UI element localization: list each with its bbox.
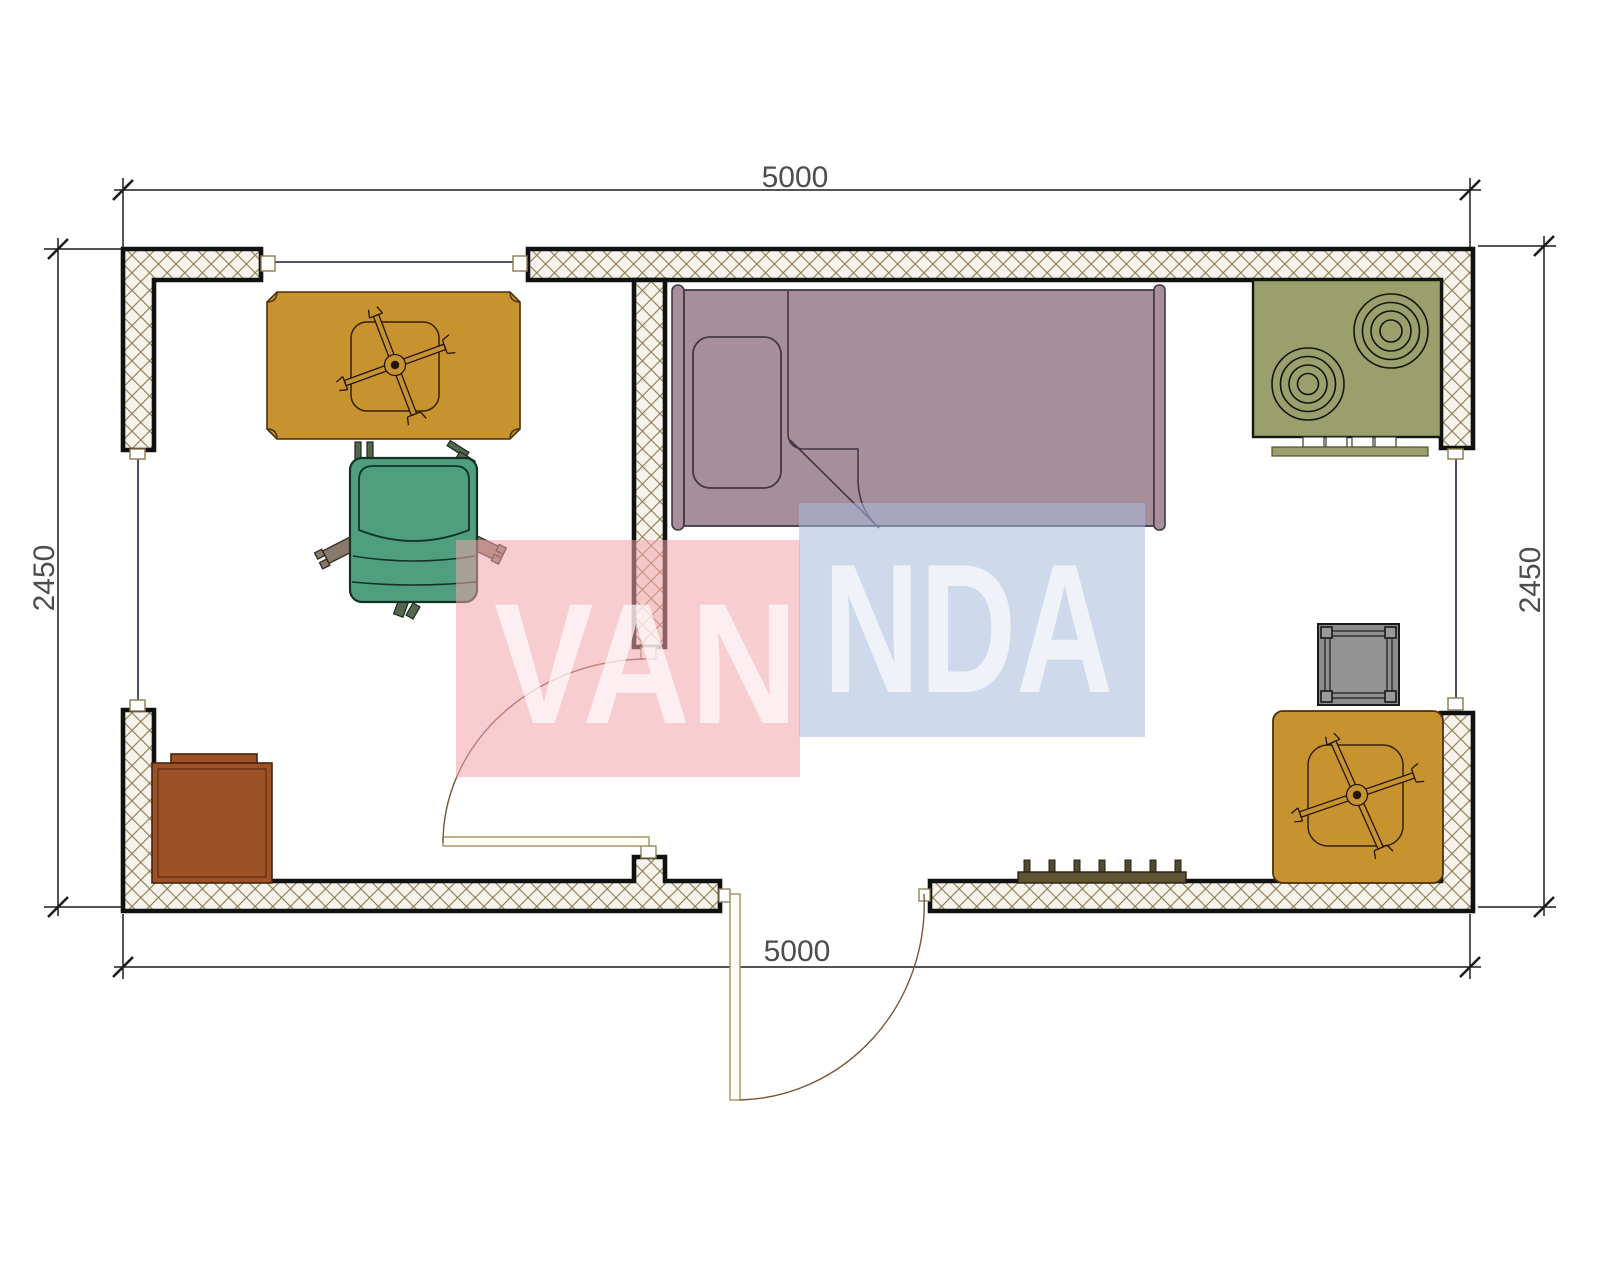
svg-text:2450: 2450 xyxy=(28,545,61,612)
svg-text:5000: 5000 xyxy=(764,935,831,968)
svg-text:5000: 5000 xyxy=(762,161,829,194)
svg-text:2450: 2450 xyxy=(1514,547,1547,614)
svg-text:VAN: VAN xyxy=(494,568,798,760)
svg-text:NDA: NDA xyxy=(823,525,1113,731)
